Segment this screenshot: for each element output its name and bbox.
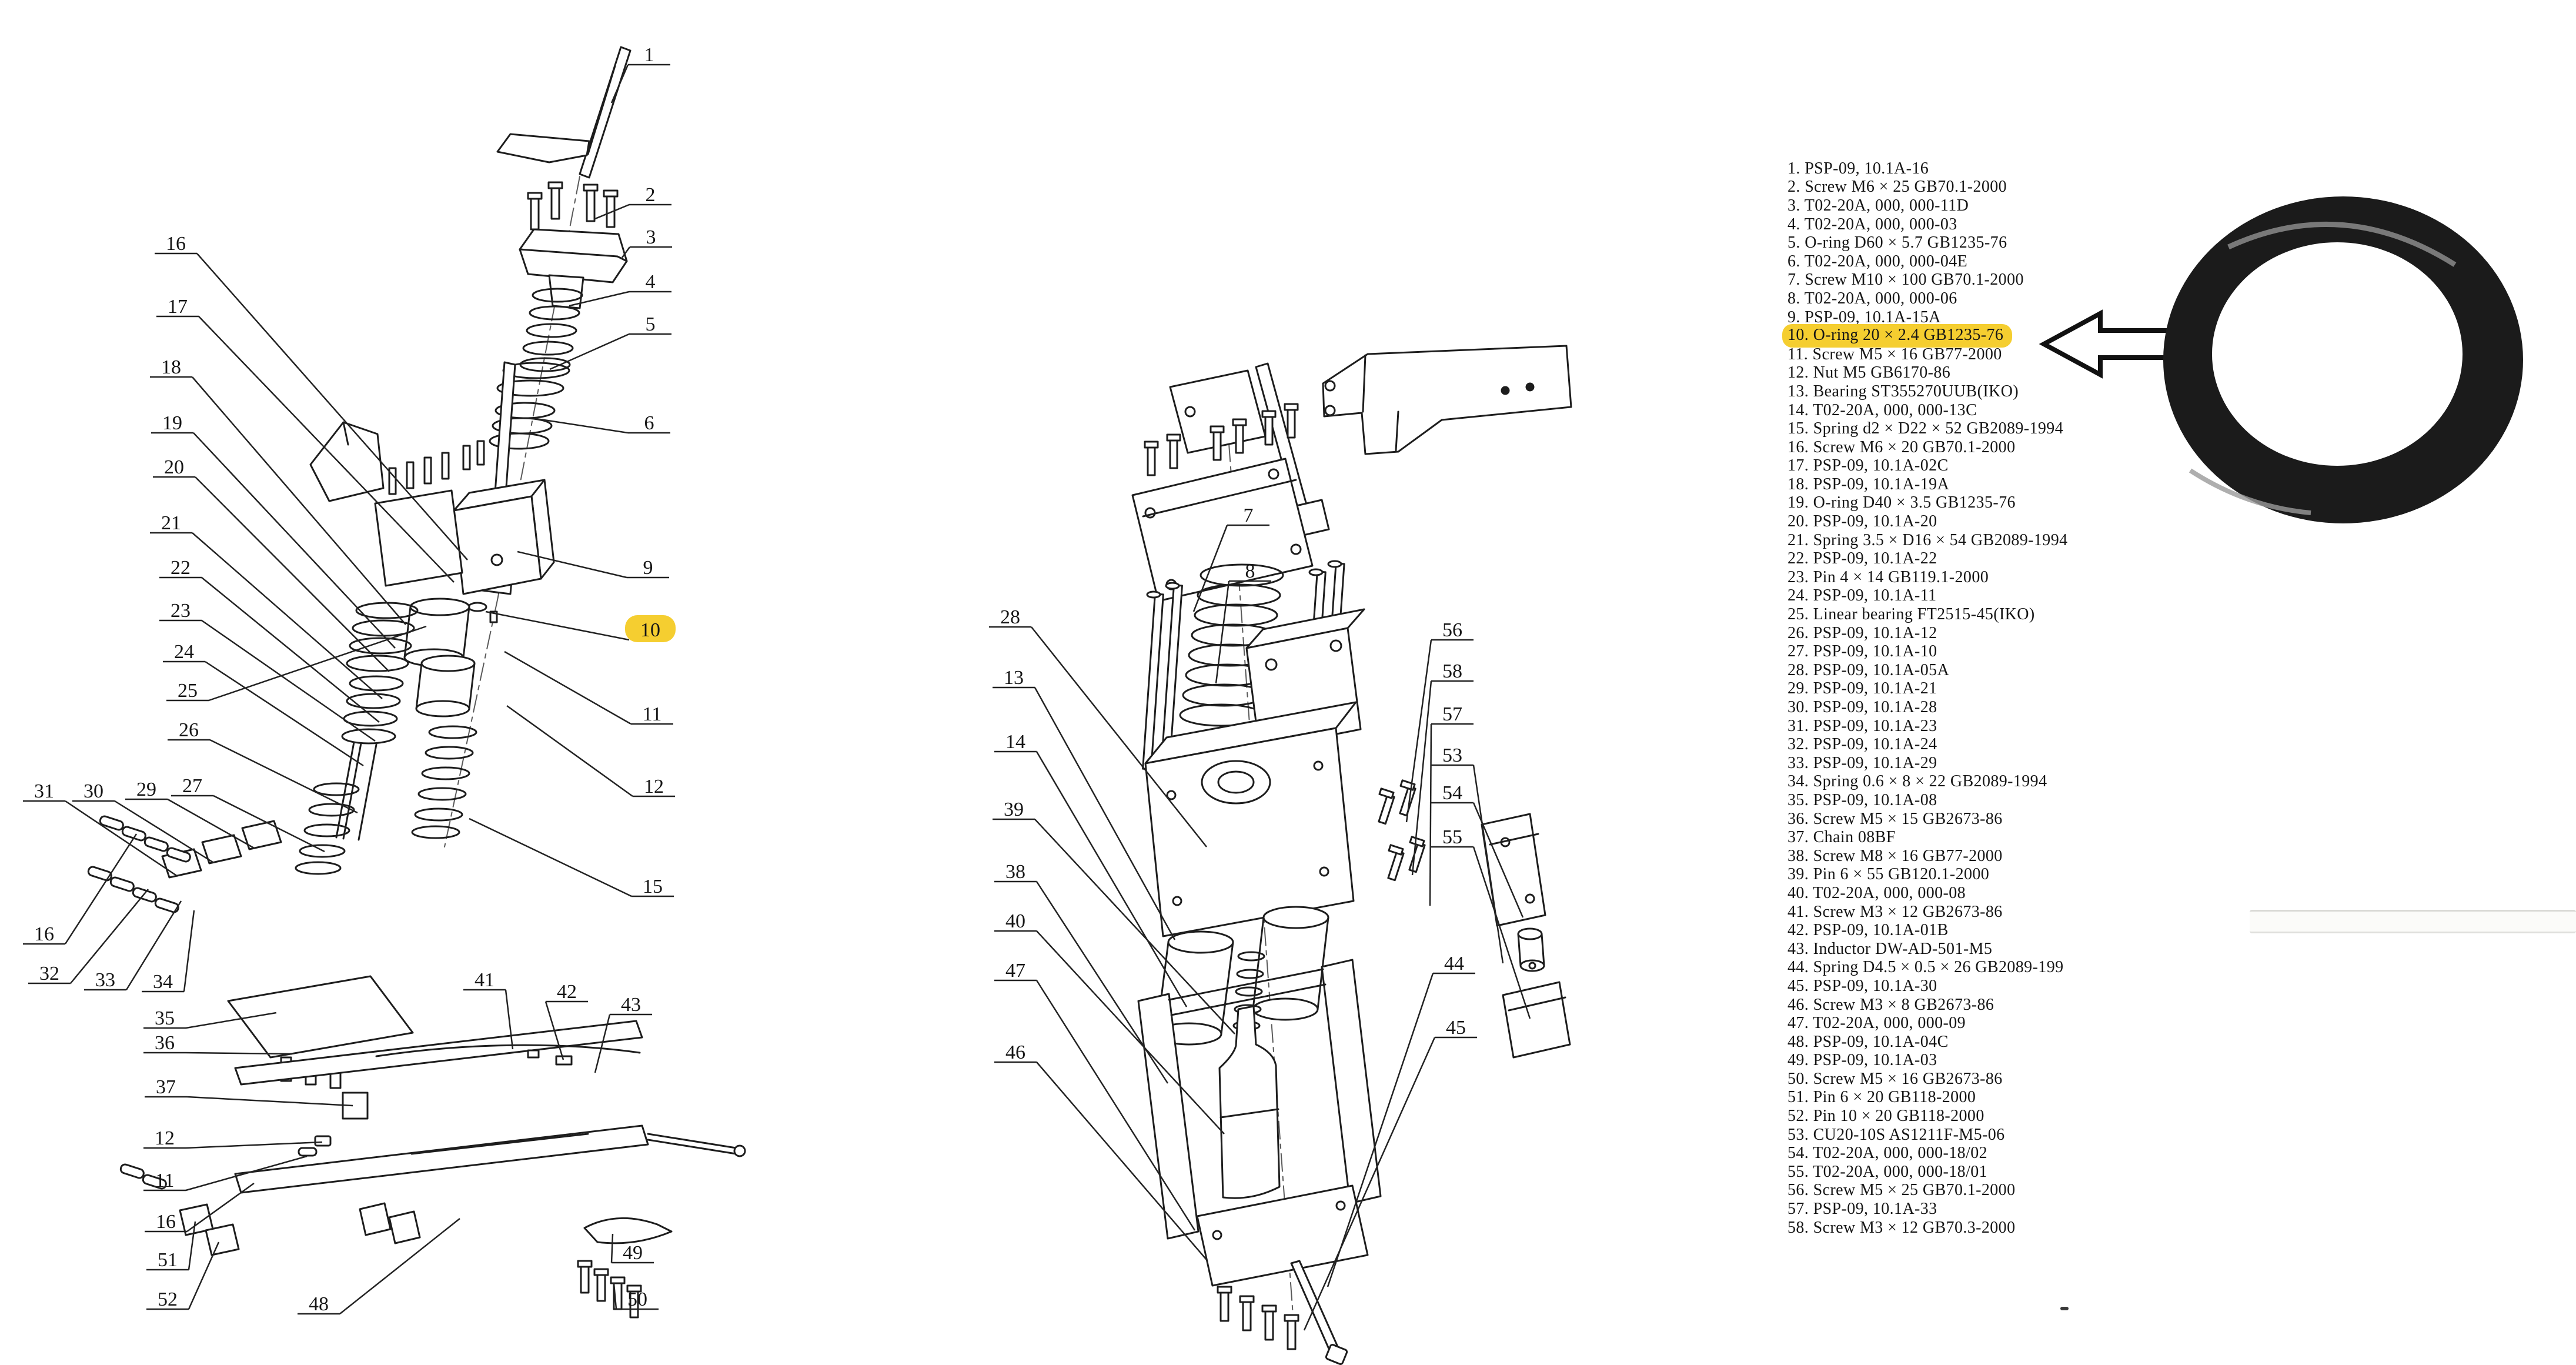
svg-text:46: 46	[1005, 1042, 1025, 1063]
svg-text:19: 19	[162, 412, 182, 434]
svg-text:52: 52	[158, 1289, 178, 1310]
parts-list-item-text: 52. Pin 10 × 20 GB118-2000	[1788, 1107, 1984, 1126]
parts-list-item-text: 31. PSP-09, 10.1A-23	[1788, 717, 1937, 736]
parts-list-item-text: 41. Screw M3 × 12 GB2673-86	[1788, 903, 2003, 922]
svg-text:18: 18	[161, 356, 181, 378]
parts-list-item-text: 18. PSP-09, 10.1A-19A	[1788, 475, 1949, 494]
parts-list-item-text: 15. Spring d2 × D22 × 52 GB2089-1994	[1788, 419, 2063, 438]
parts-list-item-text: 38. Screw M8 × 16 GB77-2000	[1788, 847, 2003, 866]
parts-list-item: 4. T02-20A, 000, 000-03	[1788, 215, 2068, 234]
parts-list-item: 32. PSP-09, 10.1A-24	[1788, 735, 2068, 754]
svg-text:16: 16	[156, 1211, 176, 1233]
parts-list-item-text: 5. O-ring D60 × 5.7 GB1235-76	[1788, 233, 2007, 252]
parts-list-item: 6. T02-20A, 000, 000-04E	[1788, 252, 2068, 271]
svg-text:47: 47	[1005, 960, 1025, 982]
callout-15: 15	[469, 819, 674, 897]
parts-list-item: 2. Screw M6 × 25 GB70.1-2000	[1788, 178, 2068, 197]
svg-text:44: 44	[1444, 953, 1464, 974]
svg-text:31: 31	[34, 780, 54, 802]
svg-text:21: 21	[161, 512, 181, 534]
parts-list-item-text: 21. Spring 3.5 × D16 × 54 GB2089-1994	[1788, 531, 2068, 550]
svg-text:41: 41	[475, 969, 495, 991]
svg-text:43: 43	[621, 994, 641, 1016]
svg-text:1: 1	[644, 44, 654, 66]
svg-text:11: 11	[155, 1170, 175, 1192]
scan-streak-artifact	[2250, 910, 2576, 933]
parts-list-item-text: 23. Pin 4 × 14 GB119.1-2000	[1788, 568, 1989, 587]
svg-text:10: 10	[640, 619, 660, 641]
parts-list-item-text: 45. PSP-09, 10.1A-30	[1788, 977, 1937, 996]
parts-list-item: 38. Screw M8 × 16 GB77-2000	[1788, 847, 2068, 866]
parts-list-item: 19. O-ring D40 × 3.5 GB1235-76	[1788, 494, 2068, 513]
parts-list-item-text: 2. Screw M6 × 25 GB70.1-2000	[1788, 178, 2007, 196]
parts-list-item: 22. PSP-09, 10.1A-22	[1788, 549, 2068, 568]
parts-list-item-text: 28. PSP-09, 10.1A-05A	[1788, 661, 1949, 680]
parts-list-item: 35. PSP-09, 10.1A-08	[1788, 791, 2068, 810]
parts-list-item-text: 14. T02-20A, 000, 000-13C	[1788, 401, 1977, 420]
parts-list-item-text: 54. T02-20A, 000, 000-18/02	[1788, 1144, 1987, 1163]
parts-list-item-text: 7. Screw M10 × 100 GB70.1-2000	[1788, 271, 2024, 289]
svg-text:34: 34	[153, 971, 173, 993]
parts-list-item-text: 53. CU20-10S AS1211F-M5-06	[1788, 1126, 2005, 1144]
parts-list-item: 45. PSP-09, 10.1A-30	[1788, 977, 2068, 996]
parts-list-item: 33. PSP-09, 10.1A-29	[1788, 754, 2068, 773]
parts-list-item: 43. Inductor DW-AD-501-M5	[1788, 940, 2068, 959]
parts-list-item: 20. PSP-09, 10.1A-20	[1788, 512, 2068, 531]
svg-text:28: 28	[1000, 606, 1020, 628]
svg-text:49: 49	[623, 1242, 643, 1264]
callout-57: 57	[1430, 703, 1474, 906]
parts-list-item: 14. T02-20A, 000, 000-13C	[1788, 401, 2068, 420]
parts-list-item: 15. Spring d2 × D22 × 52 GB2089-1994	[1788, 419, 2068, 438]
parts-list-item: 10. O-ring 20 × 2.4 GB1235-76	[1788, 326, 2068, 345]
parts-list-item: 25. Linear bearing FT2515-45(IKO)	[1788, 605, 2068, 624]
svg-text:22: 22	[171, 557, 191, 579]
svg-text:57: 57	[1442, 703, 1462, 725]
parts-list-item-text: 44. Spring D4.5 × 0.5 × 26 GB2089-199	[1788, 958, 2064, 977]
parts-list-item: 16. Screw M6 × 20 GB70.1-2000	[1788, 438, 2068, 457]
parts-list-item: 47. T02-20A, 000, 000-09	[1788, 1014, 2068, 1033]
parts-list-item-text: 11. Screw M5 × 16 GB77-2000	[1788, 345, 2002, 364]
parts-list-item: 56. Screw M5 × 25 GB70.1-2000	[1788, 1182, 2068, 1200]
diagram-artwork: 1234569101112151617181920212223242526272…	[0, 0, 2576, 1365]
callout-5: 5	[550, 313, 671, 369]
parts-list-item: 7. Screw M10 × 100 GB70.1-2000	[1788, 271, 2068, 290]
svg-text:15: 15	[643, 876, 663, 897]
parts-list-item-text: 46. Screw M3 × 8 GB2673-86	[1788, 996, 1994, 1014]
svg-text:50: 50	[627, 1289, 647, 1310]
svg-text:53: 53	[1442, 745, 1462, 766]
parts-list-item: 57. PSP-09, 10.1A-33	[1788, 1200, 2068, 1219]
parts-list-item: 5. O-ring D60 × 5.7 GB1235-76	[1788, 233, 2068, 252]
parts-list-item-text: 42. PSP-09, 10.1A-01B	[1788, 921, 1949, 940]
parts-list-item: 58. Screw M3 × 12 GB70.3-2000	[1788, 1219, 2068, 1237]
parts-list-item: 50. Screw M5 × 16 GB2673-86	[1788, 1070, 2068, 1089]
svg-text:14: 14	[1005, 731, 1025, 753]
parts-list-item: 3. T02-20A, 000, 000-11D	[1788, 196, 2068, 215]
parts-list-item-text: 16. Screw M6 × 20 GB70.1-2000	[1788, 438, 2015, 457]
svg-text:27: 27	[182, 775, 202, 797]
parts-list-item: 24. PSP-09, 10.1A-11	[1788, 587, 2068, 606]
parts-list-item-text: 40. T02-20A, 000, 000-08	[1788, 884, 1966, 903]
parts-list-item-text: 48. PSP-09, 10.1A-04C	[1788, 1033, 1949, 1052]
parts-list-item: 41. Screw M3 × 12 GB2673-86	[1788, 903, 2068, 922]
parts-list-item: 37. Chain 08BF	[1788, 828, 2068, 847]
parts-list-item-text: 3. T02-20A, 000, 000-11D	[1788, 196, 1969, 215]
parts-list-item-text: 1. PSP-09, 10.1A-16	[1788, 159, 1929, 178]
svg-text:16: 16	[34, 923, 54, 945]
svg-text:29: 29	[136, 779, 156, 800]
parts-list-item-text: 12. Nut M5 GB6170-86	[1788, 363, 1950, 382]
parts-list-item: 49. PSP-09, 10.1A-03	[1788, 1052, 2068, 1070]
svg-text:32: 32	[39, 963, 59, 984]
oring-photo-icon	[2163, 196, 2523, 523]
parts-list-item-highlighted: 10. O-ring 20 × 2.4 GB1235-76	[1782, 324, 2012, 348]
parts-list-item-text: 20. PSP-09, 10.1A-20	[1788, 512, 1937, 531]
parts-list-item: 44. Spring D4.5 × 0.5 × 26 GB2089-199	[1788, 959, 2068, 977]
parts-list-item: 29. PSP-09, 10.1A-21	[1788, 680, 2068, 699]
parts-list-item-text: 50. Screw M5 × 16 GB2673-86	[1788, 1070, 2003, 1089]
callout-10: 10	[486, 612, 676, 642]
svg-text:9: 9	[643, 557, 653, 579]
svg-text:30: 30	[83, 780, 103, 802]
parts-list-item: 28. PSP-09, 10.1A-05A	[1788, 661, 2068, 680]
parts-list-item: 42. PSP-09, 10.1A-01B	[1788, 921, 2068, 940]
parts-list-item: 36. Screw M5 × 15 GB2673-86	[1788, 810, 2068, 829]
parts-list-item-text: 51. Pin 6 × 20 GB118-2000	[1788, 1088, 1976, 1107]
svg-text:4: 4	[646, 271, 656, 293]
svg-text:25: 25	[178, 680, 198, 702]
callout-16: 16	[23, 834, 136, 945]
parts-list-item: 51. Pin 6 × 20 GB118-2000	[1788, 1089, 2068, 1107]
svg-text:58: 58	[1442, 660, 1462, 682]
parts-list-item: 11. Screw M5 × 16 GB77-2000	[1788, 345, 2068, 364]
parts-list-item: 18. PSP-09, 10.1A-19A	[1788, 475, 2068, 494]
parts-list-item: 23. Pin 4 × 14 GB119.1-2000	[1788, 568, 2068, 587]
parts-list: 1. PSP-09, 10.1A-162. Screw M6 × 25 GB70…	[1788, 159, 2068, 1237]
svg-text:54: 54	[1442, 782, 1462, 804]
parts-list-item-text: 33. PSP-09, 10.1A-29	[1788, 754, 1937, 773]
svg-text:38: 38	[1005, 861, 1025, 883]
svg-text:3: 3	[646, 226, 656, 248]
parts-list-item-text: 57. PSP-09, 10.1A-33	[1788, 1200, 1937, 1219]
parts-list-item: 34. Spring 0.6 × 8 × 22 GB2089-1994	[1788, 773, 2068, 792]
svg-text:17: 17	[168, 296, 188, 318]
parts-list-item: 27. PSP-09, 10.1A-10	[1788, 642, 2068, 661]
parts-list-item: 46. Screw M3 × 8 GB2673-86	[1788, 996, 2068, 1014]
parts-list-item-text: 47. T02-20A, 000, 000-09	[1788, 1014, 1966, 1033]
parts-list-item: 12. Nut M5 GB6170-86	[1788, 364, 2068, 383]
parts-list-item-text: 43. Inductor DW-AD-501-M5	[1788, 940, 1992, 959]
parts-list-item-text: 34. Spring 0.6 × 8 × 22 GB2089-1994	[1788, 772, 2047, 791]
parts-list-item-text: 8. T02-20A, 000, 000-06	[1788, 289, 1957, 308]
parts-list-item: 17. PSP-09, 10.1A-02C	[1788, 457, 2068, 476]
callout-12: 12	[143, 1127, 322, 1149]
scan-dot-artifact	[2060, 1307, 2069, 1310]
parts-list-item: 40. T02-20A, 000, 000-08	[1788, 884, 2068, 903]
callout-56: 56	[1406, 619, 1474, 822]
parts-list-item: 21. Spring 3.5 × D16 × 54 GB2089-1994	[1788, 531, 2068, 550]
callout-24: 24	[163, 641, 363, 766]
svg-text:45: 45	[1446, 1017, 1466, 1039]
callout-3: 3	[622, 226, 672, 258]
svg-text:7: 7	[1244, 505, 1254, 526]
parts-list-item-text: 19. O-ring D40 × 3.5 GB1235-76	[1788, 493, 2016, 512]
svg-text:33: 33	[95, 969, 115, 991]
parts-list-item: 39. Pin 6 × 55 GB120.1-2000	[1788, 866, 2068, 885]
svg-text:13: 13	[1004, 667, 1024, 689]
parts-list-item: 31. PSP-09, 10.1A-23	[1788, 717, 2068, 736]
svg-text:12: 12	[155, 1127, 175, 1149]
svg-text:48: 48	[309, 1293, 329, 1315]
svg-text:5: 5	[646, 313, 656, 335]
parts-list-item-text: 4. T02-20A, 000, 000-03	[1788, 215, 1957, 234]
svg-text:36: 36	[155, 1032, 175, 1054]
svg-text:42: 42	[557, 981, 577, 1003]
parts-list-item: 8. T02-20A, 000, 000-06	[1788, 289, 2068, 308]
callout-6: 6	[536, 412, 670, 434]
parts-list-item-text: 36. Screw M5 × 15 GB2673-86	[1788, 810, 2003, 829]
svg-text:20: 20	[164, 456, 184, 478]
svg-text:51: 51	[158, 1249, 178, 1271]
svg-text:40: 40	[1005, 910, 1025, 932]
parts-list-item-text: 35. PSP-09, 10.1A-08	[1788, 791, 1937, 810]
parts-list-item-text: 37. Chain 08BF	[1788, 828, 1896, 847]
svg-text:11: 11	[643, 703, 662, 725]
parts-list-item-text: 6. T02-20A, 000, 000-04E	[1788, 252, 1967, 271]
callout-48: 48	[298, 1219, 460, 1315]
parts-list-item-text: 39. Pin 6 × 55 GB120.1-2000	[1788, 865, 1989, 884]
parts-list-item: 53. CU20-10S AS1211F-M5-06	[1788, 1126, 2068, 1144]
parts-list-item-text: 49. PSP-09, 10.1A-03	[1788, 1051, 1937, 1070]
svg-text:35: 35	[155, 1007, 175, 1029]
parts-list-item: 52. Pin 10 × 20 GB118-2000	[1788, 1107, 2068, 1126]
parts-list-item: 13. Bearing ST355270UUB(IKO)	[1788, 382, 2068, 401]
svg-text:24: 24	[174, 641, 194, 663]
svg-text:37: 37	[156, 1076, 176, 1098]
parts-list-item-text: 32. PSP-09, 10.1A-24	[1788, 735, 1937, 754]
callout-26: 26	[168, 719, 358, 813]
svg-text:16: 16	[166, 233, 186, 255]
parts-list-item-text: 58. Screw M3 × 12 GB70.3-2000	[1788, 1219, 2015, 1237]
callout-11: 11	[504, 652, 673, 725]
parts-list-item: 48. PSP-09, 10.1A-04C	[1788, 1033, 2068, 1052]
svg-text:26: 26	[179, 719, 199, 741]
parts-list-item: 26. PSP-09, 10.1A-12	[1788, 624, 2068, 643]
svg-text:56: 56	[1442, 619, 1462, 641]
svg-text:23: 23	[171, 600, 191, 622]
parts-list-item: 30. PSP-09, 10.1A-28	[1788, 698, 2068, 717]
svg-text:12: 12	[644, 776, 664, 797]
parts-list-item-text: 29. PSP-09, 10.1A-21	[1788, 679, 1937, 698]
parts-list-item-text: 17. PSP-09, 10.1A-02C	[1788, 456, 1949, 475]
svg-text:39: 39	[1004, 799, 1024, 820]
parts-list-item-text: 27. PSP-09, 10.1A-10	[1788, 642, 1937, 661]
parts-list-item-text: 25. Linear bearing FT2515-45(IKO)	[1788, 605, 2035, 624]
parts-list-item-text: 55. T02-20A, 000, 000-18/01	[1788, 1163, 1987, 1182]
scanned-parts-diagram-page: 1234569101112151617181920212223242526272…	[0, 0, 2576, 1365]
parts-list-item: 54. T02-20A, 000, 000-18/02	[1788, 1144, 2068, 1163]
svg-text:2: 2	[646, 184, 656, 206]
parts-list-item-text: 30. PSP-09, 10.1A-28	[1788, 698, 1937, 717]
callout-45: 45	[1304, 1017, 1477, 1330]
parts-list-item-text: 22. PSP-09, 10.1A-22	[1788, 549, 1937, 568]
svg-text:55: 55	[1442, 826, 1462, 848]
parts-list-item: 55. T02-20A, 000, 000-18/01	[1788, 1163, 2068, 1182]
parts-list-item: 1. PSP-09, 10.1A-16	[1788, 159, 2068, 178]
parts-list-item-text: 13. Bearing ST355270UUB(IKO)	[1788, 382, 2019, 401]
parts-list-item-text: 26. PSP-09, 10.1A-12	[1788, 624, 1937, 643]
svg-text:8: 8	[1245, 560, 1255, 582]
middle-exploded-diagram	[1132, 346, 1571, 1365]
svg-text:6: 6	[644, 412, 654, 434]
parts-list-item-text: 24. PSP-09, 10.1A-11	[1788, 586, 1937, 605]
parts-list-item-text: 56. Screw M5 × 25 GB70.1-2000	[1788, 1181, 2015, 1200]
